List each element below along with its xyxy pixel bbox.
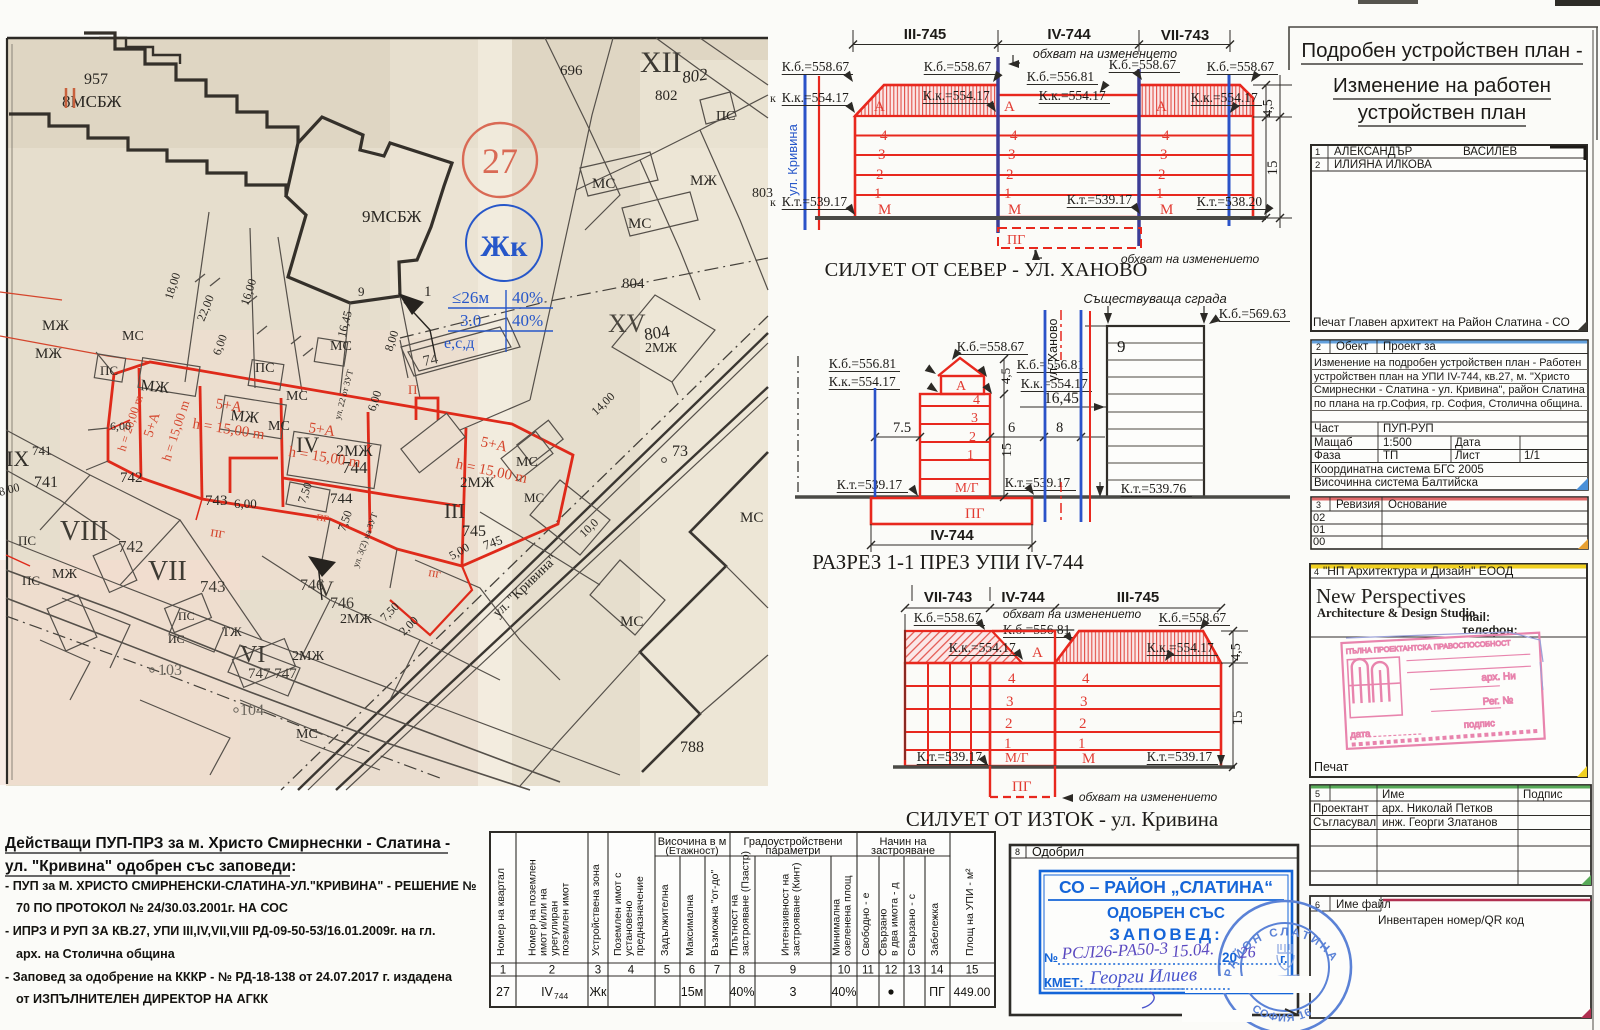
svg-text:подпис: подпис (1464, 718, 1496, 731)
svg-text:ПГ: ПГ (1007, 233, 1025, 248)
svg-text:МЖ: МЖ (35, 346, 62, 362)
svg-text:Фаза: Фаза (1314, 450, 1341, 462)
svg-text:13: 13 (908, 965, 921, 977)
svg-text:4: 4 (973, 393, 980, 408)
svg-text:МЖ: МЖ (42, 318, 69, 334)
svg-text:15: 15 (1000, 443, 1015, 457)
svg-text:МС: МС (516, 455, 538, 470)
svg-text:МС: МС (286, 389, 308, 404)
svg-text:20: 20 (1222, 950, 1237, 965)
svg-text:ПС: ПС (100, 363, 118, 378)
svg-text:VIII: VIII (60, 516, 108, 547)
svg-text:Устройствена зона: Устройствена зона (590, 864, 602, 956)
svg-text:02: 02 (1313, 512, 1325, 524)
svg-text:Дата: Дата (1455, 437, 1481, 449)
svg-text:"НП Архитектура и Дизайн" ЕООД: "НП Архитектура и Дизайн" ЕООД (1323, 564, 1513, 578)
svg-text:10: 10 (838, 965, 851, 977)
svg-text:7: 7 (714, 965, 720, 977)
svg-text:застрояване (Пзастр): застрояване (Пзастр) (740, 851, 752, 956)
svg-text:ИС: ИС (168, 632, 185, 646)
svg-text:4,5: 4,5 (998, 368, 1013, 384)
svg-text:1: 1 (1078, 736, 1086, 752)
svg-text:К.т.=539.17: К.т.=539.17 (1147, 749, 1213, 764)
svg-text:4,5: 4,5 (1261, 99, 1276, 117)
svg-text:МС: МС (122, 329, 144, 344)
svg-text:3: 3 (1006, 694, 1014, 710)
svg-text:957: 957 (84, 71, 108, 88)
svg-text:ПГ: ПГ (1012, 779, 1032, 795)
svg-text:арх. Ни: арх. Ни (1481, 671, 1516, 684)
svg-text:к: к (770, 195, 776, 209)
svg-text:70 ПО ПРОТОКОЛ № 24/30.03.2001: 70 ПО ПРОТОКОЛ № 24/30.03.2001г. НА СОС (16, 901, 288, 915)
svg-text:73: 73 (672, 443, 688, 460)
svg-text:3: 3 (878, 147, 886, 163)
svg-text:12: 12 (885, 965, 898, 977)
svg-text:пг: пг (316, 508, 330, 525)
svg-text:15: 15 (966, 965, 979, 977)
svg-text:40%: 40% (512, 288, 543, 307)
svg-text:К.б.=556.81: К.б.=556.81 (829, 356, 896, 371)
svg-text:Съгласувал: Съгласувал (1313, 817, 1376, 829)
svg-text:746: 746 (330, 595, 354, 612)
svg-text:параметри: параметри (766, 845, 821, 857)
svg-text:- Заповед за одобрение на КККР: - Заповед за одобрение на КККР - № РД-18… (5, 970, 453, 984)
svg-text:К.к.=554.17: К.к.=554.17 (1191, 90, 1258, 105)
svg-text:744: 744 (554, 991, 568, 1001)
svg-text:1: 1 (874, 186, 882, 202)
svg-text:6,00: 6,00 (234, 496, 257, 511)
svg-text:К.т.=539.76: К.т.=539.76 (1121, 481, 1187, 496)
svg-text:1: 1 (1004, 186, 1012, 202)
svg-text:6: 6 (689, 965, 695, 977)
svg-text:26: 26 (1239, 944, 1256, 962)
svg-text:3: 3 (1008, 147, 1016, 163)
svg-text:III-745: III-745 (904, 26, 947, 43)
svg-text:К.б.=558.67: К.б.=558.67 (1109, 57, 1177, 72)
svg-text:Обект: Обект (1336, 341, 1369, 353)
svg-text:3: 3 (790, 985, 797, 999)
svg-text:449.00: 449.00 (954, 985, 991, 999)
svg-text:40%: 40% (729, 985, 754, 999)
svg-text:New Perspectives: New Perspectives (1316, 584, 1466, 608)
svg-text:устройствен план на УПИ IV-744: устройствен план на УПИ IV-744, кв.27, м… (1314, 371, 1570, 383)
svg-text:К.б.=558.67: К.б.=558.67 (957, 339, 1025, 354)
svg-text:К.б.=558.67: К.б.=558.67 (782, 59, 850, 74)
svg-text:Проектант: Проектант (1313, 803, 1369, 815)
svg-text:инж. Георги Златанов: инж. Георги Златанов (1382, 817, 1498, 829)
svg-text:4: 4 (1010, 128, 1018, 144)
svg-text:VII-743: VII-743 (924, 589, 972, 606)
svg-text:3: 3 (971, 411, 978, 426)
svg-text:озеленена площ: озеленена площ (842, 875, 854, 956)
svg-text:Свободно - е: Свободно - е (860, 892, 872, 956)
svg-text:К.б.=558.67: К.б.=558.67 (914, 610, 982, 625)
svg-text:00: 00 (1313, 536, 1325, 548)
svg-text:К.к.=554.17: К.к.=554.17 (782, 90, 849, 105)
svg-text:2: 2 (1158, 167, 1166, 183)
svg-text:743: 743 (200, 577, 226, 596)
svg-text:2: 2 (969, 430, 976, 445)
svg-text:Мащаб: Мащаб (1314, 437, 1353, 449)
svg-text:1: 1 (424, 284, 432, 300)
svg-text:Одобрил: Одобрил (1032, 845, 1084, 859)
svg-text:Печат: Печат (1314, 760, 1349, 774)
svg-text:поземлен имот: поземлен имот (560, 882, 572, 956)
svg-text:ПС: ПС (255, 361, 274, 376)
svg-text:4: 4 (1082, 671, 1090, 687)
svg-text:по плана на гр.София, гр. Софи: по плана на гр.София, гр. София, Столичн… (1314, 398, 1583, 410)
svg-text:IV-744: IV-744 (1047, 26, 1091, 43)
svg-text:ПС: ПС (18, 533, 36, 548)
svg-text:2: 2 (1005, 716, 1013, 732)
svg-text:Забележка: Забележка (929, 903, 941, 956)
svg-text:Съществуваща сграда: Съществуваща сграда (1083, 291, 1226, 306)
svg-text:Номер на квартал: Номер на квартал (495, 868, 507, 956)
svg-text:4: 4 (1008, 671, 1016, 687)
svg-text:в два имота - д: в два имота - д (889, 882, 901, 956)
svg-text:СО – РАЙОН „СЛАТИНА“: СО – РАЙОН „СЛАТИНА“ (1059, 876, 1273, 897)
svg-text:Възможна "от-до": Възможна "от-до" (709, 869, 721, 956)
svg-text:741: 741 (32, 443, 52, 458)
svg-text:МС: МС (296, 727, 318, 742)
svg-text:788: 788 (680, 739, 704, 756)
svg-text:МС: МС (628, 216, 651, 232)
svg-text:- ИПРЗ И РУП ЗА КВ.27, УПИ III: - ИПРЗ И РУП ЗА КВ.27, УПИ III,IV,VII,VI… (5, 924, 436, 938)
svg-text:743: 743 (205, 493, 228, 509)
svg-text:Architecture & Design Studio: Architecture & Design Studio (1317, 606, 1475, 620)
svg-text:27: 27 (496, 985, 510, 999)
svg-text:15м: 15м (681, 985, 704, 999)
svg-text:8: 8 (739, 965, 745, 977)
svg-text:К.б.=556.81: К.б.=556.81 (1027, 69, 1094, 84)
svg-text:КМЕТ:: КМЕТ: (1044, 975, 1084, 990)
svg-text:4: 4 (1162, 128, 1170, 144)
svg-text:Действащи ПУП-ПРЗ за м. Христо: Действащи ПУП-ПРЗ за м. Христо Смирнеснк… (5, 835, 450, 852)
svg-text:Име файл: Име файл (1336, 899, 1391, 911)
svg-text:пг: пг (428, 564, 442, 581)
svg-text:ул. "Кривина" одобрен със запо: ул. "Кривина" одобрен със заповеди: (5, 858, 296, 875)
svg-text:744: 744 (330, 491, 353, 507)
svg-text:14: 14 (931, 965, 944, 977)
svg-text:IV-744: IV-744 (1001, 589, 1045, 606)
svg-text:К.б.=569.63: К.б.=569.63 (1219, 306, 1287, 321)
svg-text:К.б.=558.67: К.б.=558.67 (924, 59, 992, 74)
svg-text:IV: IV (541, 985, 553, 999)
svg-text:2: 2 (1079, 716, 1087, 732)
svg-text:К.т.=539.17: К.т.=539.17 (917, 749, 983, 764)
svg-text:742: 742 (118, 537, 144, 556)
svg-text:8: 8 (1015, 847, 1020, 857)
svg-text:Георги Илиев: Георги Илиев (1088, 964, 1197, 989)
svg-text:9: 9 (1117, 337, 1126, 356)
svg-text:МС: МС (268, 419, 290, 434)
svg-text:4,5: 4,5 (1229, 643, 1244, 661)
svg-text:ул. Кривина: ул. Кривина (785, 123, 800, 195)
svg-text:застрояване (Кинт): застрояване (Кинт) (791, 862, 803, 956)
svg-text:М: М (878, 202, 891, 218)
svg-text:АЛЕКСАНДЪР: АЛЕКСАНДЪР (1334, 146, 1413, 158)
svg-text:2: 2 (1315, 160, 1320, 171)
svg-text:К.к.=554.17: К.к.=554.17 (923, 88, 990, 103)
svg-text:МС: МС (740, 510, 763, 526)
svg-text:МЖ: МЖ (690, 173, 717, 189)
svg-text:6,00: 6,00 (110, 419, 131, 433)
svg-text:№: № (1044, 951, 1058, 965)
svg-text:П: П (408, 382, 417, 397)
svg-text:8МСБЖ: 8МСБЖ (62, 92, 122, 111)
svg-text:104: 104 (240, 702, 264, 719)
svg-text:МС: МС (592, 176, 615, 192)
svg-text:4: 4 (628, 965, 635, 977)
svg-text:ПУП-РУП: ПУП-РУП (1383, 423, 1434, 435)
svg-text:(Етажност): (Етажност) (665, 845, 718, 857)
svg-text:ПС: ПС (22, 573, 40, 588)
svg-text:VI: VI (240, 642, 265, 668)
svg-text:К.б.=558.67: К.б.=558.67 (1207, 59, 1275, 74)
svg-text:1: 1 (1156, 186, 1164, 202)
svg-text:9: 9 (790, 965, 796, 977)
svg-text:Ревизия: Ревизия (1336, 499, 1380, 511)
svg-text:ПС: ПС (178, 609, 195, 623)
svg-text:арх. Николай Петков: арх. Николай Петков (1382, 803, 1493, 815)
svg-text:Координатна система БГС 2005: Координатна система БГС 2005 (1314, 464, 1484, 476)
svg-text:А: А (956, 379, 967, 394)
svg-text:5: 5 (664, 965, 670, 977)
svg-text:Изменение на работен: Изменение на работен (1333, 74, 1551, 97)
svg-text:01: 01 (1313, 524, 1325, 536)
svg-text:е,с,д: е,с,д (444, 335, 474, 352)
svg-text:6: 6 (1008, 420, 1015, 436)
svg-text:К.т.=539.17: К.т.=539.17 (1067, 192, 1133, 207)
svg-text:К.к.=554.17: К.к.=554.17 (829, 374, 896, 389)
svg-text:ИЛИЯНА ИЛКОВА: ИЛИЯНА ИЛКОВА (1334, 159, 1432, 171)
svg-text:40%: 40% (512, 311, 543, 330)
svg-text:4: 4 (1314, 567, 1319, 577)
svg-text:Свързано - с: Свързано - с (906, 894, 918, 956)
svg-text:Проект за: Проект за (1383, 341, 1436, 353)
svg-text:804: 804 (622, 276, 645, 292)
svg-text:742: 742 (120, 470, 143, 486)
svg-text:≤26м: ≤26м (452, 288, 489, 307)
svg-text:2: 2 (549, 965, 555, 977)
svg-text:Максимална: Максимална (684, 894, 696, 956)
svg-text:Задължителна: Задължителна (659, 884, 671, 956)
svg-text:пг: пг (209, 524, 226, 542)
svg-text:К.т.=539.17: К.т.=539.17 (837, 477, 903, 492)
svg-text:от ИЗПЪЛНИТЕЛЕН ДИРЕКТОР НА АГ: от ИЗПЪЛНИТЕЛЕН ДИРЕКТОР НА АГКК (16, 992, 268, 1006)
svg-text:III: III (444, 499, 465, 523)
svg-text:741: 741 (34, 474, 58, 491)
svg-text:Основание: Основание (1388, 499, 1447, 511)
svg-text:696: 696 (560, 63, 583, 79)
svg-text:застрояване: застрояване (871, 845, 935, 857)
svg-text:Жк: Жк (589, 985, 607, 999)
svg-text:Смирнеснки - Слатина - ул. Кри: Смирнеснки - Слатина - ул. Кривина", рай… (1314, 384, 1586, 396)
svg-text:2: 2 (1316, 342, 1321, 352)
svg-text:9: 9 (358, 284, 365, 299)
svg-text:Име: Име (1382, 789, 1405, 801)
svg-text:2МЖ: 2МЖ (340, 612, 372, 627)
svg-text:ТЖ: ТЖ (222, 624, 242, 639)
svg-text:ОДОБРЕН СЪС: ОДОБРЕН СЪС (1107, 905, 1225, 922)
svg-text:2: 2 (1006, 167, 1014, 183)
svg-text:Печат Главен архитект на Район: Печат Главен архитект на Район Слатина -… (1313, 315, 1570, 329)
svg-text:Изменение на подробен устройст: Изменение на подробен устройствен план -… (1314, 357, 1581, 369)
svg-text:Подробен устройствен план -: Подробен устройствен план - (1301, 39, 1582, 62)
svg-text:3: 3 (1316, 500, 1321, 510)
svg-text:РАЗРЕЗ 1-1 ПРЕЗ УПИ IV-744: РАЗРЕЗ 1-1 ПРЕЗ УПИ IV-744 (812, 550, 1084, 574)
svg-text:М/Г: М/Г (955, 480, 979, 495)
svg-text:IV-744: IV-744 (930, 527, 974, 544)
svg-text:3: 3 (595, 965, 601, 977)
svg-text:МС: МС (524, 490, 544, 505)
svg-text:М: М (1008, 202, 1021, 218)
svg-text:ВАСИЛЕВ: ВАСИЛЕВ (1463, 146, 1517, 158)
svg-text:МЖ: МЖ (52, 567, 77, 582)
svg-text:27: 27 (482, 141, 518, 181)
svg-text:XII: XII (640, 46, 682, 79)
svg-text:5: 5 (1315, 789, 1320, 799)
svg-text:XV: XV (608, 309, 646, 338)
svg-text:К.к.=554.17: К.к.=554.17 (1039, 88, 1106, 103)
svg-text:ТП: ТП (1383, 450, 1398, 462)
svg-text:3.0: 3.0 (460, 311, 481, 330)
svg-text:дата: дата (1350, 729, 1371, 741)
svg-text:К.б.=558.67: К.б.=558.67 (1159, 610, 1227, 625)
svg-text:Подпис: Подпис (1523, 789, 1563, 801)
svg-text:МС: МС (620, 614, 643, 630)
svg-text:К.к.=554.17: К.к.=554.17 (1147, 640, 1214, 655)
svg-text:предназначение: предназначение (634, 876, 646, 956)
svg-text:Рег. №: Рег. № (1482, 695, 1513, 708)
svg-text:1/1: 1/1 (1524, 450, 1540, 462)
svg-text:2МЖ: 2МЖ (292, 649, 324, 664)
svg-text:3: 3 (1160, 147, 1168, 163)
svg-text:VII-743: VII-743 (1161, 27, 1209, 44)
svg-text:К.т.=538.20: К.т.=538.20 (1197, 194, 1263, 209)
svg-text:747 747: 747 747 (248, 666, 297, 682)
svg-text:ул. Ханово: ул. Ханово (1046, 319, 1060, 382)
svg-text:9МСБЖ: 9МСБЖ (362, 207, 422, 226)
svg-text:1: 1 (1315, 147, 1320, 158)
svg-text:15: 15 (1230, 711, 1246, 726)
svg-text:2МЖ: 2МЖ (645, 341, 677, 356)
svg-text:к: к (770, 91, 776, 105)
svg-text:1:500: 1:500 (1383, 437, 1412, 449)
svg-text:4: 4 (880, 128, 888, 144)
svg-text:1: 1 (967, 448, 974, 463)
svg-text:устройствен план: устройствен план (1358, 101, 1526, 124)
svg-text:2: 2 (876, 167, 884, 183)
svg-text:Жк: Жк (481, 230, 529, 263)
svg-text:М/Г: М/Г (1005, 750, 1029, 765)
svg-text:обхват на изменението: обхват на изменението (1003, 607, 1142, 621)
svg-text:МС: МС (330, 339, 352, 354)
svg-text:Част: Част (1314, 423, 1340, 435)
svg-text:7.5: 7.5 (893, 420, 911, 436)
svg-text:А: А (1032, 645, 1043, 661)
svg-text:Лист: Лист (1455, 450, 1481, 462)
svg-text:Височинна система Балтийска: Височинна система Балтийска (1314, 477, 1479, 489)
svg-text:- ПУП за М. ХРИСТО СМИРНЕНСКИ-: - ПУП за М. ХРИСТО СМИРНЕНСКИ-СЛАТИНА-УЛ… (5, 879, 476, 893)
svg-text:VII: VII (148, 556, 187, 587)
svg-text:А: А (1156, 99, 1167, 115)
svg-text:А: А (1004, 99, 1015, 115)
svg-text:обхват на изменението: обхват на изменението (1079, 790, 1218, 804)
svg-text:ПГ: ПГ (929, 985, 945, 999)
svg-text:40%: 40% (831, 985, 856, 999)
svg-text:А: А (874, 99, 885, 115)
svg-text:Площ на УПИ - м²: Площ на УПИ - м² (964, 868, 976, 956)
svg-text:802: 802 (681, 65, 709, 87)
svg-text:15: 15 (1265, 161, 1281, 176)
svg-text:1: 1 (500, 965, 506, 977)
svg-text:М: М (1160, 202, 1173, 218)
svg-text:арх. на Столична община: арх. на Столична община (16, 947, 176, 961)
svg-text:СИЛУЕТ ОТ ИЗТОК - ул. Кривина: СИЛУЕТ ОТ ИЗТОК - ул. Кривина (906, 808, 1218, 831)
svg-text:16,45: 16,45 (1044, 390, 1079, 407)
svg-text:802: 802 (655, 88, 678, 104)
svg-text:ПГ: ПГ (965, 506, 985, 522)
svg-text:15.04.: 15.04. (1171, 939, 1215, 961)
svg-text:IX: IX (6, 446, 29, 471)
svg-text:III-745: III-745 (1117, 589, 1160, 606)
svg-text:103: 103 (158, 662, 182, 679)
svg-text:3: 3 (1080, 694, 1088, 710)
svg-text:К.к.=554.17: К.к.=554.17 (949, 640, 1016, 655)
svg-text:Инвентарен номер/QR код: Инвентарен номер/QR код (1378, 913, 1524, 927)
svg-text:К.т.=539.17: К.т.=539.17 (782, 194, 848, 209)
svg-text:mail:: mail: (1462, 610, 1490, 624)
svg-text:ПС: ПС (716, 109, 735, 124)
svg-text:МЖ: МЖ (140, 377, 171, 397)
svg-text:М: М (1082, 751, 1095, 767)
svg-text:г.: г. (1280, 952, 1287, 966)
svg-text:СИЛУЕТ ОТ СЕВЕР - УЛ. ХАНОВО: СИЛУЕТ ОТ СЕВЕР - УЛ. ХАНОВО (825, 259, 1148, 281)
svg-text:11: 11 (862, 965, 874, 977)
svg-text:8: 8 (1056, 420, 1063, 436)
